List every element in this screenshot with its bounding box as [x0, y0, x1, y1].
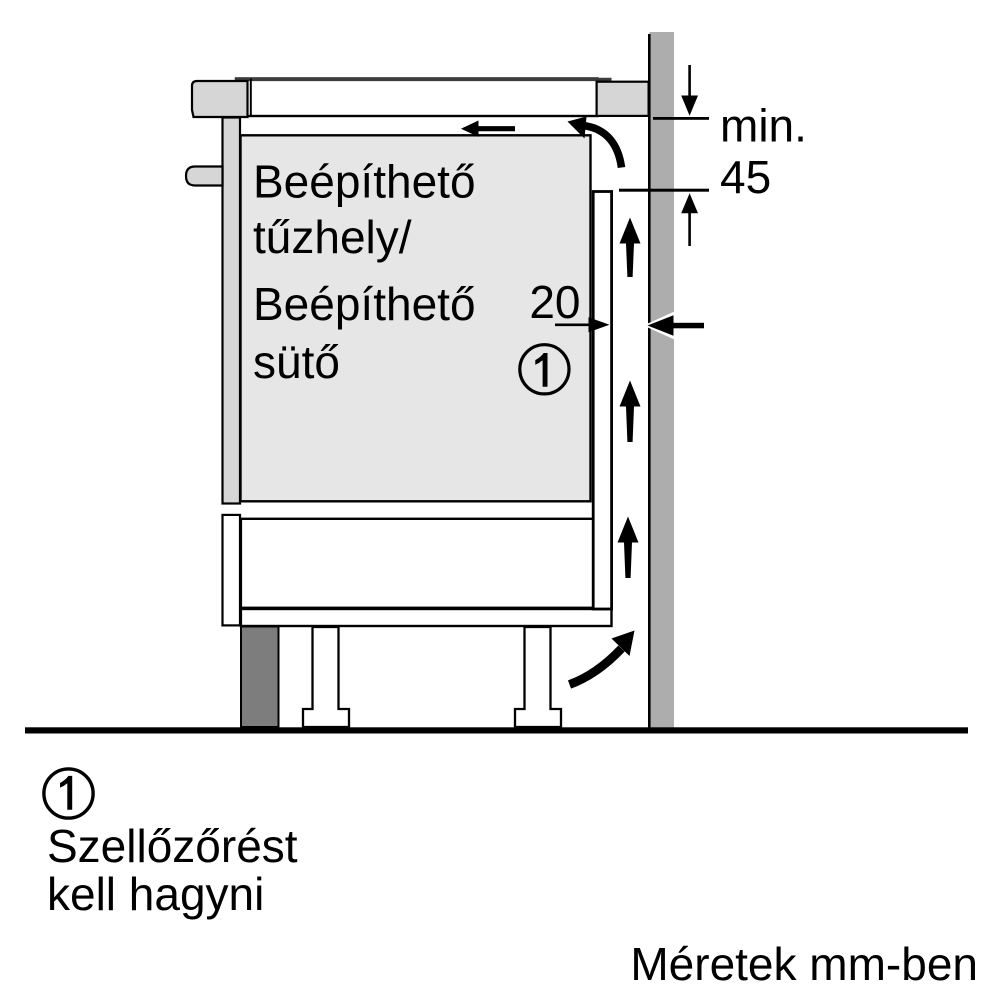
svg-text:sütő: sütő: [253, 336, 340, 388]
svg-text:Méretek mm-ben: Méretek mm-ben: [630, 938, 978, 990]
svg-text:kell hagyni: kell hagyni: [47, 868, 264, 920]
svg-text:20: 20: [529, 276, 580, 328]
svg-text:Beépíthető: Beépíthető: [253, 156, 476, 208]
svg-text:tűzhely/: tűzhely/: [253, 211, 412, 263]
svg-text:Szellőzőrést: Szellőzőrést: [47, 820, 298, 872]
svg-text:45: 45: [720, 151, 771, 203]
svg-text:min.: min.: [720, 100, 807, 152]
svg-text:Beépíthető: Beépíthető: [253, 278, 476, 330]
